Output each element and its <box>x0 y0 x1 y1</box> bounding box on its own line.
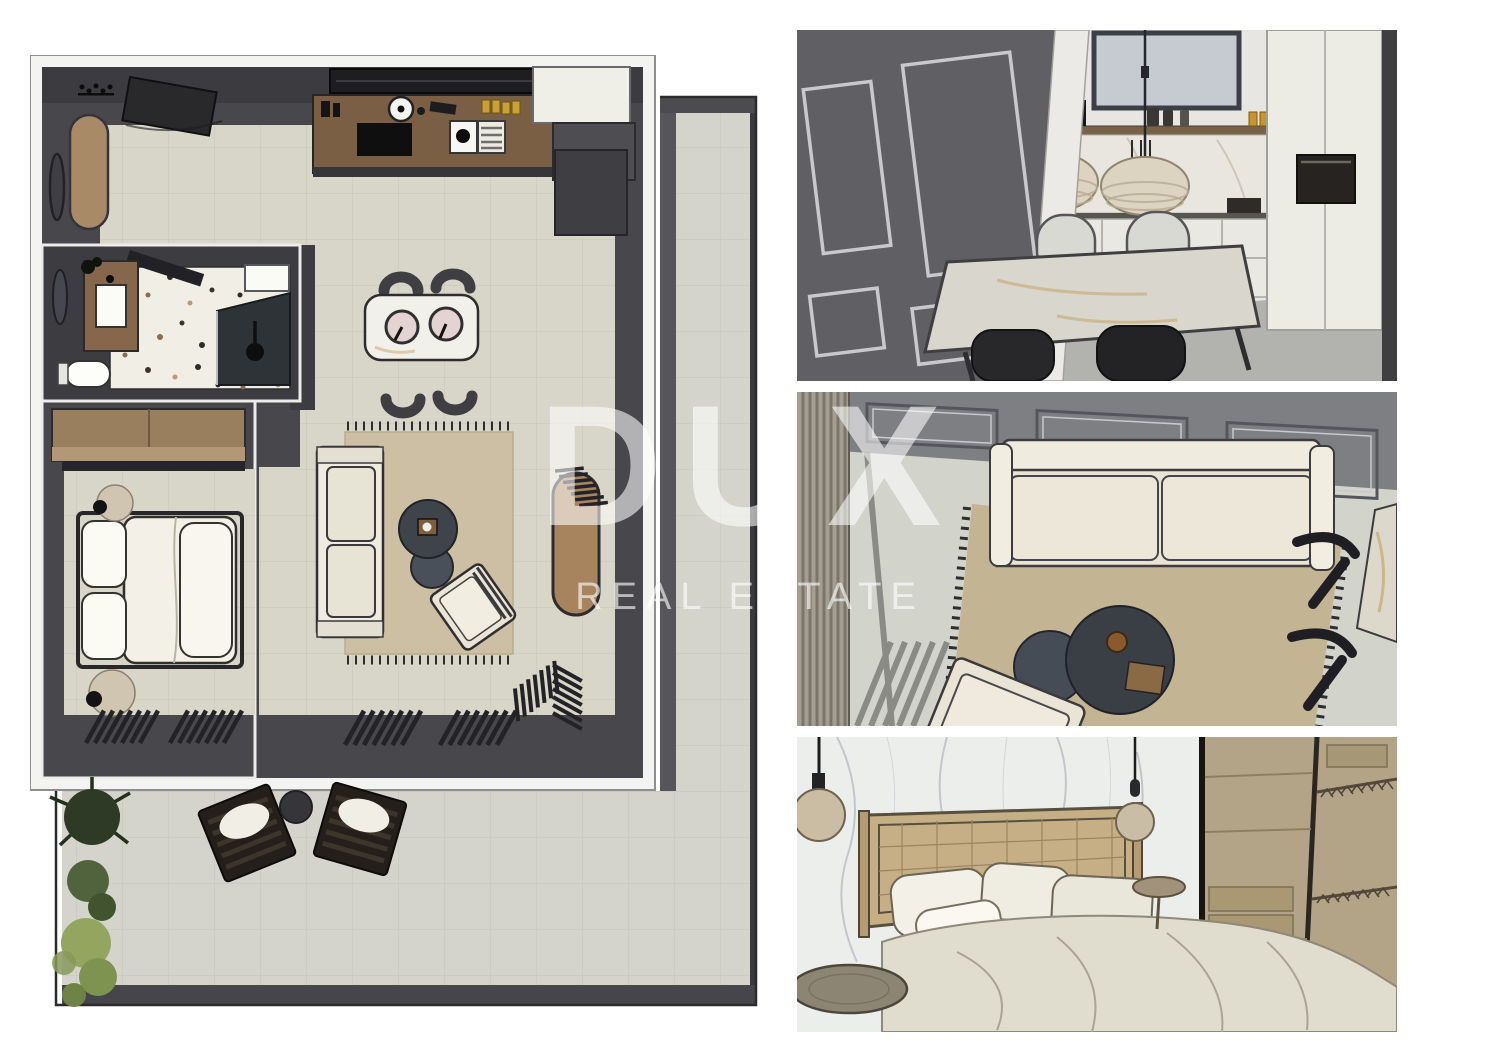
toilet <box>66 361 110 387</box>
sofa-arm <box>317 621 383 637</box>
terrace-wall-bottom <box>62 985 756 1005</box>
storage-box <box>1327 745 1387 767</box>
hall-mirror <box>50 154 64 220</box>
toilet-tank <box>58 363 68 385</box>
bathroom <box>42 245 300 401</box>
bed-pillow <box>82 593 126 659</box>
right-cabinet-column <box>1267 30 1397 381</box>
plant-pot <box>92 257 102 267</box>
render-dining-kitchen <box>797 30 1397 381</box>
sofa <box>317 447 383 637</box>
curtain <box>797 392 849 726</box>
table-book <box>1125 662 1165 695</box>
sofa-cushion <box>327 467 375 541</box>
bed-pillow <box>82 521 126 587</box>
render-living-room <box>797 392 1397 726</box>
basin-drain <box>456 129 470 143</box>
kitchen-item <box>417 107 425 115</box>
drain <box>398 106 405 113</box>
dark-chair <box>972 330 1054 381</box>
living-room-scene <box>797 392 1397 726</box>
shelf-jars <box>1147 108 1189 126</box>
faucet <box>106 275 114 283</box>
sofa-arm <box>1310 446 1334 570</box>
window <box>1094 33 1239 108</box>
shower-head <box>246 343 264 361</box>
coffee-table <box>1066 606 1174 714</box>
round-side-table <box>797 965 907 1013</box>
terrace-wall-top <box>660 97 756 115</box>
wardrobe-shadow <box>62 461 245 471</box>
counter-shadow <box>313 167 553 177</box>
stool-leg <box>1157 897 1159 929</box>
dining-kitchen-scene <box>797 30 1397 381</box>
white-cabinet <box>533 67 630 123</box>
sofa-cushion <box>1162 476 1312 560</box>
real-estate-brochure-page: DUX REAL ESTATE <box>0 0 1500 1050</box>
dark-chair <box>1097 326 1185 381</box>
lamp-base <box>86 691 102 707</box>
bath-shelf <box>245 265 289 291</box>
floor-plan-panel <box>30 55 760 1010</box>
vase <box>1107 632 1127 652</box>
hall-wardrobe <box>70 115 108 229</box>
bottle <box>333 103 340 117</box>
sofa-cushion <box>1010 476 1158 560</box>
wardrobe-drawer <box>1209 887 1293 911</box>
vanity-sink <box>96 285 126 327</box>
sofa-arm <box>990 444 1012 566</box>
sofa-top-view <box>990 440 1334 570</box>
tall-unit <box>555 150 627 235</box>
bath-mirror <box>53 270 67 324</box>
bed-pillow-large <box>180 523 232 657</box>
render-bedroom <box>797 737 1397 1032</box>
wardrobe-front <box>52 447 245 461</box>
bedroom-scene <box>797 737 1397 1032</box>
entry-hall-tiles <box>100 125 315 257</box>
sofa-arm <box>317 447 383 463</box>
lamp-base <box>93 500 107 514</box>
floor-plan-drawing <box>30 55 760 1010</box>
terrace-side-table <box>280 791 312 823</box>
sofa-cushion <box>327 545 375 617</box>
right-wall-edge <box>1382 30 1397 381</box>
bed-post <box>859 811 869 937</box>
bedside-stool <box>1133 877 1185 897</box>
terrace-tiles <box>62 791 750 987</box>
counter-appliance <box>1227 198 1261 213</box>
cooktop <box>357 123 412 156</box>
bottle <box>321 101 330 117</box>
tray-bowl <box>423 523 432 532</box>
